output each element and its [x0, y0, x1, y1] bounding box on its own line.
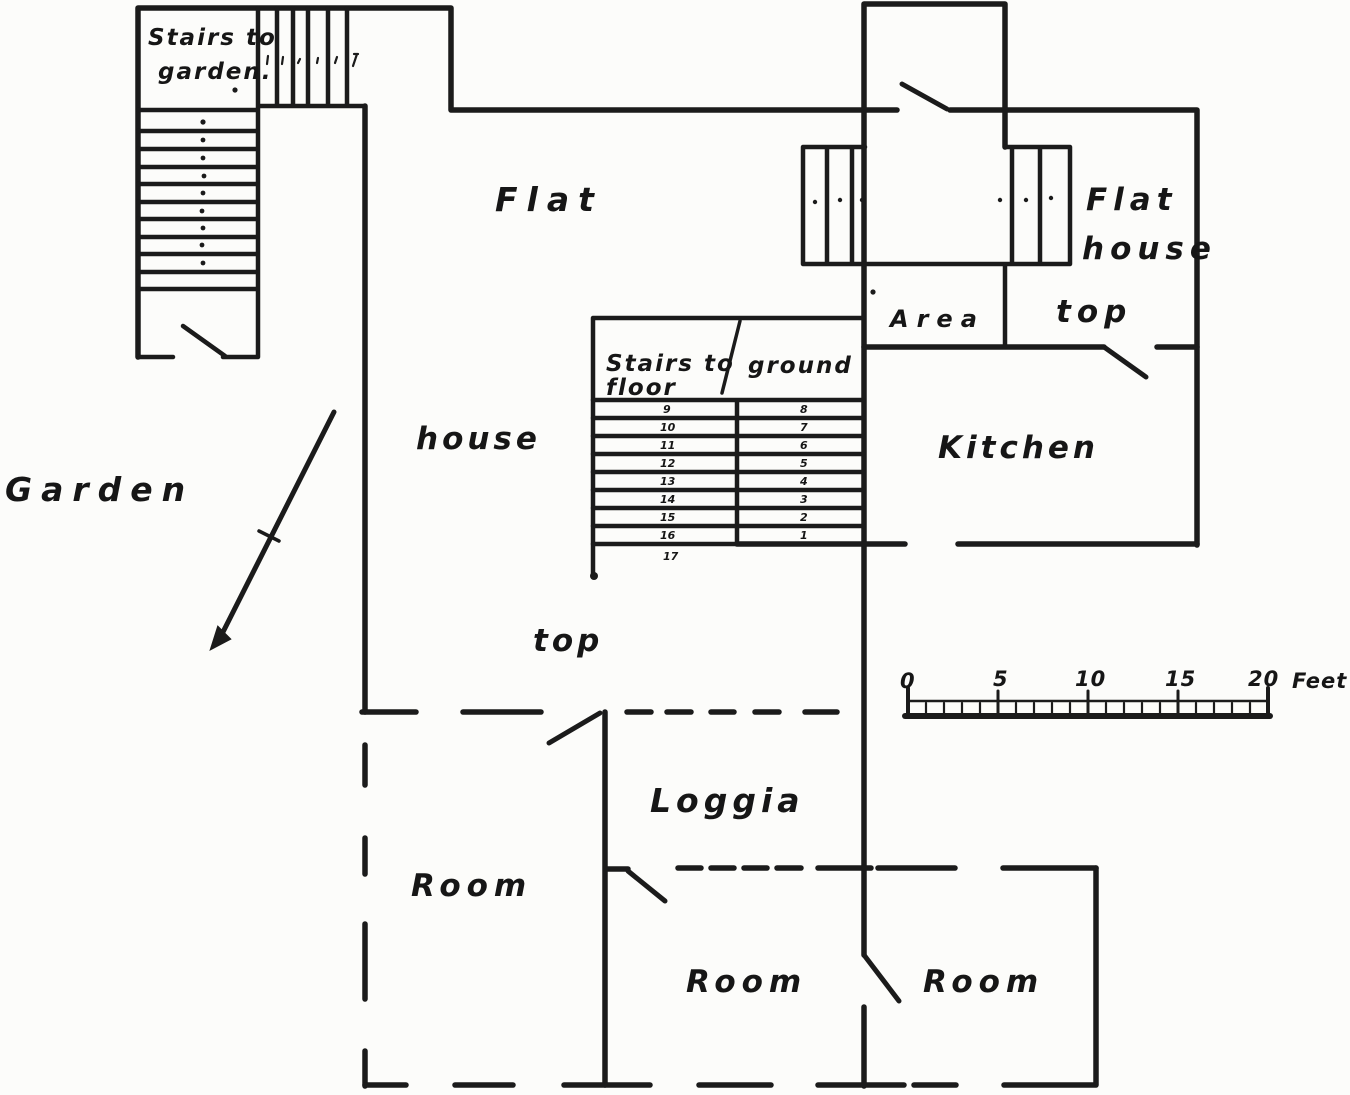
- label-loggia: Loggia: [650, 781, 805, 820]
- stair-number-marks: [267, 54, 358, 66]
- label-stairs-ground-word-right: ground: [748, 353, 853, 379]
- tread-number: 14: [660, 493, 675, 506]
- floor-plan-svg: 0 5 10 15 20 Feet Stairs to garden. Flat…: [0, 0, 1350, 1095]
- label-stairs-to-garden-line1: Stairs to: [148, 25, 277, 51]
- label-flat-center: Flat: [495, 180, 603, 219]
- tread-number: 12: [660, 457, 676, 470]
- label-stairs-ground-line1: Stairs to: [606, 351, 735, 377]
- flat-door-leaf: [902, 84, 947, 109]
- tread-number: 7: [800, 421, 808, 434]
- tread-number: 4: [799, 475, 808, 488]
- center-room-door-leaf: [628, 871, 665, 901]
- tread-number: 9: [663, 403, 671, 416]
- label-garden: Garden: [5, 470, 194, 509]
- scale-tick-20: 20: [1248, 667, 1279, 691]
- front-door-leaf: [1104, 347, 1146, 377]
- label-house-center: house: [416, 421, 541, 457]
- label-stairs-ground-line2: floor: [606, 375, 677, 401]
- ground-stairs-numbers: 9 10 11 12 13 14 15 16 17 8 7 6 5 4 3 2 …: [660, 403, 808, 563]
- label-room-left: Room: [411, 868, 532, 904]
- label-room-right: Room: [923, 964, 1044, 1000]
- garden-stairs-door-leaf: [183, 326, 225, 356]
- label-room-center: Room: [686, 964, 807, 1000]
- scale-mid-ticks: [998, 691, 1178, 716]
- tread-number: 6: [800, 439, 808, 452]
- scale-unit: Feet: [1292, 669, 1347, 693]
- scale-tick-10: 10: [1075, 667, 1106, 691]
- garden-direction-arrow: [211, 412, 334, 649]
- right-room-door-leaf: [864, 955, 899, 1001]
- scale-bar: [905, 688, 1270, 716]
- tread-number: 1: [800, 529, 808, 542]
- label-flat-right: Flat: [1086, 182, 1178, 218]
- scale-tick-5: 5: [993, 667, 1009, 691]
- label-top-right: top: [1056, 294, 1132, 330]
- tread-number: 5: [800, 457, 808, 470]
- arrow-head: [211, 627, 230, 649]
- wall-end-blob: [590, 572, 598, 580]
- tread-number: 13: [660, 475, 676, 488]
- tread-number: 3: [800, 493, 808, 506]
- scale-bar-labels: 0 5 10 15 20 Feet: [900, 667, 1347, 693]
- label-house-right: house: [1082, 231, 1217, 267]
- label-area: Area: [888, 305, 985, 333]
- label-stairs-to-garden-line2: garden.: [158, 59, 273, 85]
- ground-floor-stairs: [400, 0, 863, 580]
- tread-number: 10: [660, 421, 676, 434]
- label-top-center: top: [533, 623, 603, 659]
- tread-number: 11: [660, 439, 675, 452]
- tread-number: 17: [663, 550, 679, 563]
- landing-tread-marks: [813, 196, 1053, 295]
- floor-plan-drawing: 0 5 10 15 20 Feet Stairs to garden. Flat…: [0, 0, 1350, 1095]
- tread-number: 2: [800, 511, 808, 524]
- tread-number: 8: [800, 403, 808, 416]
- area-walls: [864, 347, 1197, 377]
- room-labels: Stairs to garden. Flat Flat house top Ar…: [5, 25, 1217, 1000]
- scale-tick-0: 0: [900, 669, 916, 693]
- tread-number: 16: [660, 529, 676, 542]
- loggia-door-leaf: [549, 713, 600, 743]
- tread-number: 15: [660, 511, 676, 524]
- scale-tick-15: 15: [1165, 667, 1196, 691]
- label-kitchen: Kitchen: [938, 430, 1099, 466]
